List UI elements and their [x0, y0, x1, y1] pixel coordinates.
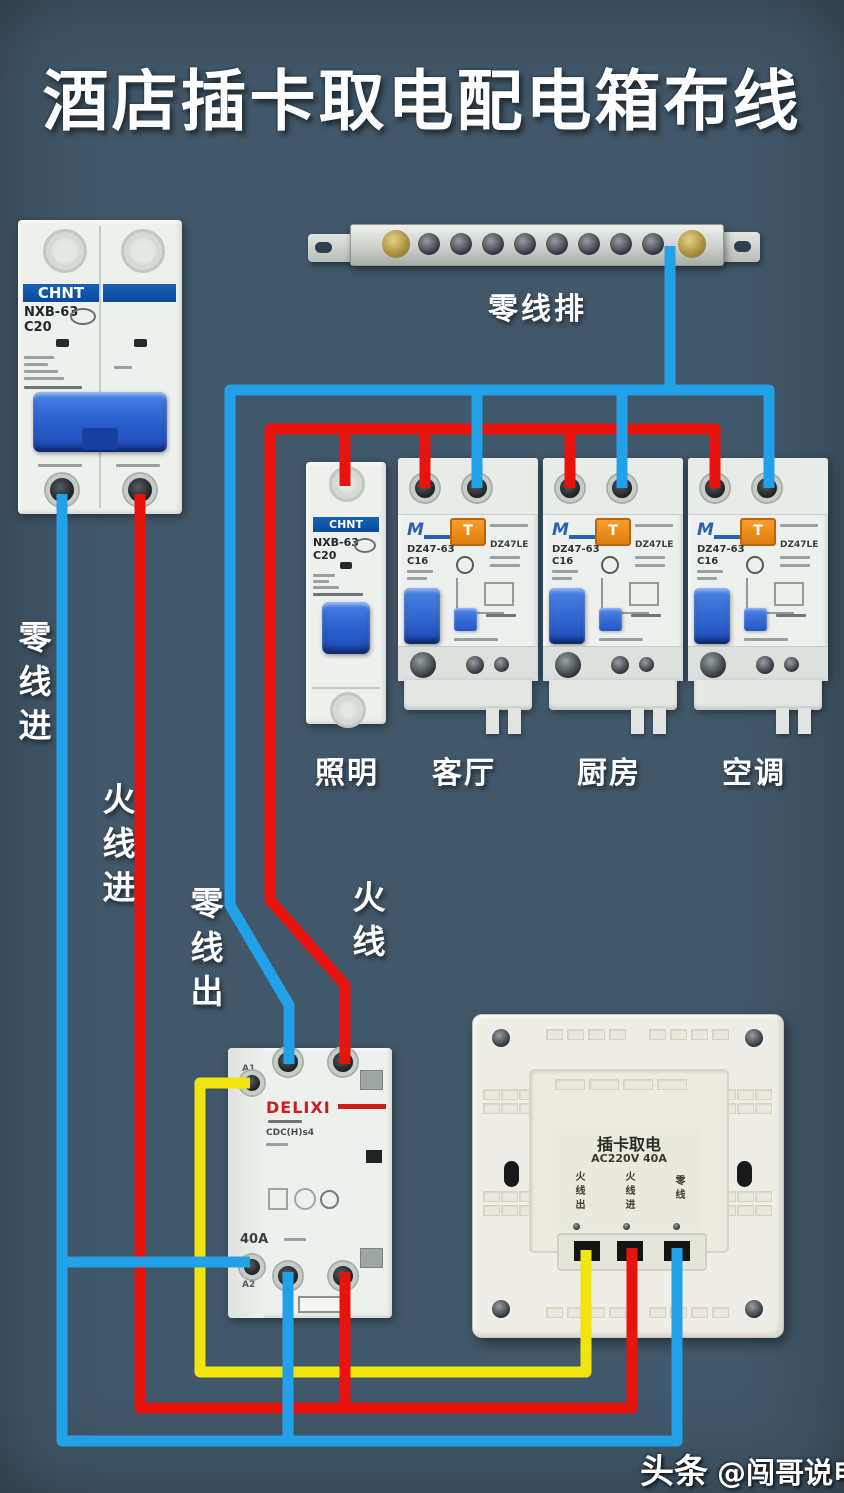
rcbo-living-room: M T DZ47-63 C16 DZ47LE	[398, 458, 538, 722]
rcbo-kitchen: M T DZ47-63 C16 DZ47LE	[543, 458, 683, 722]
test-button: T	[740, 518, 776, 546]
main-breaker-neutral-terminal	[46, 474, 78, 506]
contactor: A1 DELIXI CDC(H)s4 40A A2	[228, 1048, 392, 1318]
status-window-right	[134, 339, 147, 347]
test-button: T	[450, 518, 486, 546]
top-knockout-right	[121, 229, 165, 273]
contactor-top-terminal-live	[329, 1048, 357, 1076]
circuit-label-living-room: 客厅	[432, 748, 496, 792]
brand-label: CHNT	[23, 284, 99, 302]
contactor-bottom-terminal-live	[329, 1262, 357, 1290]
watermark-account: @闯哥说电气	[717, 1450, 844, 1492]
lighting-terminal-knockout	[329, 466, 365, 502]
terminal-slot-live-out	[574, 1241, 600, 1261]
terminal-label-live-out: 火线出	[571, 1171, 586, 1213]
panel-screw	[492, 1029, 510, 1047]
live-terminal	[411, 474, 439, 502]
circuit-label-kitchen: 厨房	[577, 748, 641, 792]
reset-button	[744, 608, 767, 631]
test-button: T	[595, 518, 631, 546]
neutral-bar-label: 零线排	[488, 284, 587, 328]
card-switch-rating: AC220V 40A	[559, 1152, 699, 1165]
brand-logo: M	[552, 520, 569, 540]
type-label: DZ47LE	[780, 540, 818, 550]
panel-screw	[745, 1300, 763, 1318]
main-breaker: CHNT NXB-63 C20	[18, 220, 182, 514]
circuit-label-lighting: 照明	[315, 748, 379, 792]
mounting-slot-left	[504, 1161, 519, 1187]
label-live-in: 火线进	[92, 782, 140, 914]
rating-label: C16	[552, 556, 573, 567]
page-background: 酒店插卡取电配电箱布线 CHNT NXB-63 C20	[0, 0, 844, 1493]
contactor-bottom-terminal-neutral	[274, 1262, 302, 1290]
terminal-a2-label: A2	[242, 1280, 255, 1290]
lighting-breaker-handle	[322, 602, 370, 654]
live-terminal	[701, 474, 729, 502]
main-breaker-live-terminal	[124, 474, 156, 506]
neutral-bar-screw-large-left	[382, 230, 410, 258]
contactor-top-terminal-neutral	[274, 1048, 302, 1076]
model-label: DZ47-63	[697, 544, 745, 555]
rating-label: C16	[407, 556, 428, 567]
label-live: 火线	[342, 880, 390, 968]
neutral-terminal	[463, 474, 491, 502]
status-window-left	[56, 339, 69, 347]
circuit-label-air-conditioner: 空调	[722, 748, 786, 792]
rcbo-handle	[549, 588, 585, 644]
neutral-terminal	[608, 474, 636, 502]
card-switch-panel: 插卡取电 AC220V 40A 火线出 火线进 零线	[472, 1014, 784, 1338]
indicator-window-bottom	[360, 1248, 383, 1268]
terminal-a1	[240, 1071, 264, 1095]
rating-label: C20	[24, 320, 52, 335]
reset-button	[454, 608, 477, 631]
contactor-rating: 40A	[240, 1232, 268, 1247]
terminal-slot-live-in	[617, 1241, 643, 1261]
label-neutral-out: 零线出	[180, 886, 228, 1018]
watermark: 头条 @闯哥说电气	[640, 1444, 844, 1493]
neutral-bar-screw-large-right	[678, 230, 706, 258]
neutral-terminal	[753, 474, 781, 502]
rcbo-handle	[694, 588, 730, 644]
mounting-slot-right	[737, 1161, 752, 1187]
main-breaker-handle	[33, 392, 167, 452]
breaker-lighting: CHNT NXB-63 C20	[306, 462, 386, 724]
type-label: DZ47LE	[490, 540, 528, 550]
terminal-label-live-in: 火线进	[621, 1171, 636, 1213]
reset-button	[599, 608, 622, 631]
model-label: DZ47-63	[552, 544, 600, 555]
rating-label: C20	[313, 549, 336, 562]
pole-divider	[99, 226, 101, 508]
brand-logo: M	[407, 520, 424, 540]
indicator-window-mid	[366, 1150, 382, 1163]
switch-module: 插卡取电 AC220V 40A 火线出 火线进 零线	[529, 1069, 729, 1253]
model-label: DZ47-63	[407, 544, 455, 555]
brand-band	[103, 284, 176, 302]
indicator-window-top	[360, 1070, 383, 1090]
brand-logo: M	[697, 520, 714, 540]
terminal-a2	[240, 1255, 264, 1279]
panel-screw	[745, 1029, 763, 1047]
module-label-area: 插卡取电 AC220V 40A 火线出 火线进 零线	[559, 1129, 699, 1231]
cert-mark	[354, 538, 376, 553]
rcbo-air-conditioner: M T DZ47-63 C16 DZ47LE	[688, 458, 828, 722]
model-label: NXB-63	[313, 536, 359, 549]
live-terminal	[556, 474, 584, 502]
brand-line	[338, 1104, 386, 1109]
terminal-slot-neutral	[664, 1241, 690, 1261]
rcbo-handle	[404, 588, 440, 644]
terminal-label-neutral: 零线	[671, 1175, 686, 1203]
contactor-brand: DELIXI	[266, 1098, 331, 1117]
contactor-model: CDC(H)s4	[266, 1128, 314, 1138]
din-clip	[298, 1296, 350, 1313]
rating-label: C16	[697, 556, 718, 567]
type-label: DZ47LE	[635, 540, 673, 550]
panel-screw	[492, 1300, 510, 1318]
top-knockout-left	[43, 229, 87, 273]
brand-label: CHNT	[313, 517, 379, 532]
watermark-brand: 头条	[640, 1444, 708, 1493]
cert-mark	[70, 308, 96, 325]
page-title: 酒店插卡取电配电箱布线	[0, 48, 844, 144]
label-neutral-in: 零线进	[8, 620, 56, 752]
bottom-knockout	[330, 692, 366, 728]
